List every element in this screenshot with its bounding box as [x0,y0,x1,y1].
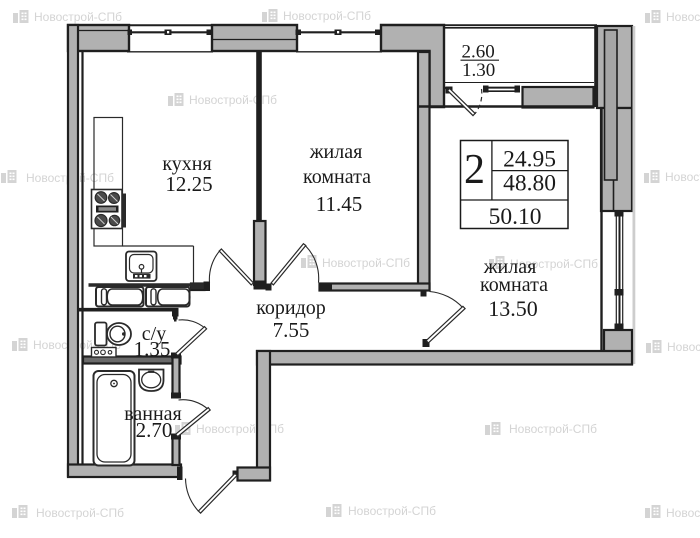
svg-text:Новострой-СПб: Новострой-СПб [283,9,371,23]
svg-text:11.45: 11.45 [316,192,362,216]
svg-text:Новострой-СПб: Новострой-СПб [36,506,124,520]
svg-text:24.95: 24.95 [503,147,556,173]
svg-text:Новостр: Новостр [667,340,700,354]
svg-text:1.35: 1.35 [134,337,171,361]
svg-text:коридор: коридор [256,297,326,319]
svg-text:13.50: 13.50 [488,296,538,321]
svg-text:Новостр: Новостр [666,506,700,520]
svg-text:2.70: 2.70 [136,418,173,442]
svg-text:Новостр: Новостр [666,10,700,24]
svg-text:48.80: 48.80 [503,171,556,197]
svg-text:Новострой-СПб: Новострой-СПб [322,256,410,270]
svg-text:12.25: 12.25 [165,172,212,196]
svg-text:Новостр: Новостр [665,170,700,184]
svg-text:Новострой-СПб: Новострой-СПб [509,422,597,436]
svg-text:Новострой-СПб: Новострой-СПб [348,504,436,518]
svg-text:2: 2 [464,147,485,193]
svg-text:50.10: 50.10 [489,204,542,230]
svg-text:комната: комната [303,166,371,188]
svg-text:комната: комната [480,274,548,296]
svg-text:7.55: 7.55 [273,318,310,342]
svg-text:Новострой-СПб: Новострой-СПб [34,10,122,24]
svg-text:Новострой-СПб: Новострой-СПб [189,93,277,107]
svg-text:жилая: жилая [309,141,363,163]
svg-text:1.30: 1.30 [462,60,495,81]
